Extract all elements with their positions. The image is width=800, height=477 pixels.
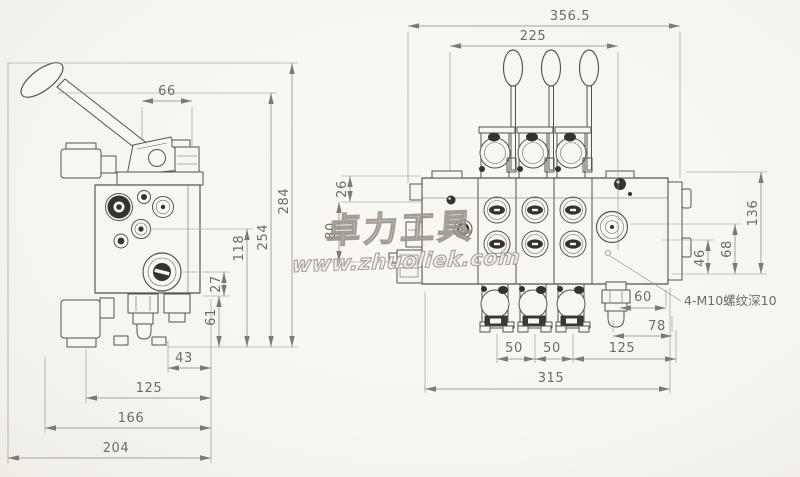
side-bottom-parts xyxy=(61,294,190,347)
outlet-fitting xyxy=(602,282,630,327)
dim-125-front: 125 xyxy=(609,341,636,356)
dim-78: 78 xyxy=(648,319,666,334)
dim-50-a: 50 xyxy=(505,341,523,356)
dim-284: 284 xyxy=(277,188,292,215)
side-view xyxy=(16,57,203,347)
dim-27: 27 xyxy=(209,275,224,293)
dim-61: 61 xyxy=(204,308,219,326)
breather-boss xyxy=(606,171,634,178)
lever-knob xyxy=(16,57,69,104)
dim-166: 166 xyxy=(118,411,145,426)
dim-43: 43 xyxy=(175,351,193,366)
dim-315: 315 xyxy=(538,371,565,386)
dim-125-side: 125 xyxy=(136,381,163,396)
thread-note: 4-M10螺纹深10 xyxy=(684,293,777,308)
dim-50-b: 50 xyxy=(543,341,561,356)
locating-stud xyxy=(447,196,456,205)
dim-204: 204 xyxy=(103,441,130,456)
dim-254: 254 xyxy=(256,224,271,251)
dim-118: 118 xyxy=(232,235,247,262)
dim-26: 26 xyxy=(335,180,350,198)
dim-46: 46 xyxy=(693,249,708,267)
watermark-brand: 卓力工具 xyxy=(325,207,476,252)
drawing-canvas: 66 284 254 118 27 61 43 125 166 204 xyxy=(0,0,800,477)
dim-66: 66 xyxy=(158,84,176,99)
dim-60: 60 xyxy=(634,290,652,305)
dim-225: 225 xyxy=(520,29,547,44)
dim-356-5: 356.5 xyxy=(550,9,590,24)
dim-136: 136 xyxy=(746,200,761,227)
dim-68: 68 xyxy=(720,240,735,258)
end-plate-right xyxy=(668,182,691,280)
valve-drawing: 66 284 254 118 27 61 43 125 166 204 xyxy=(0,0,800,477)
